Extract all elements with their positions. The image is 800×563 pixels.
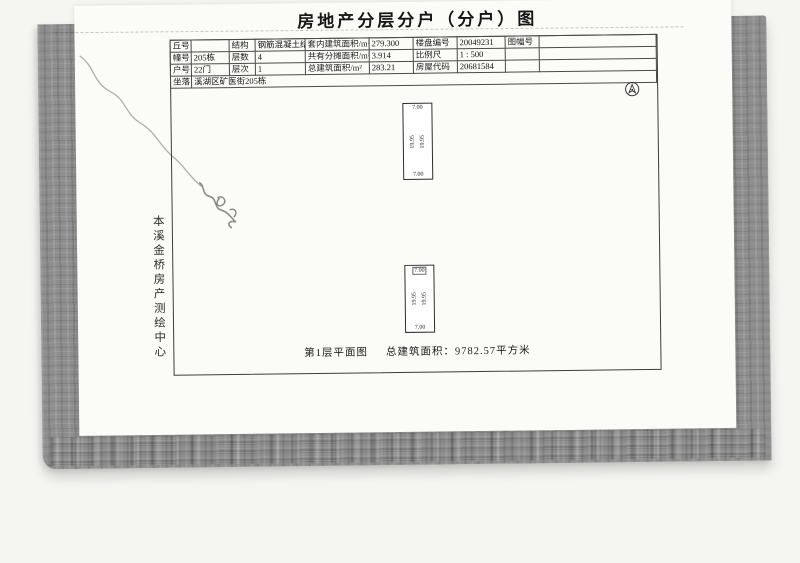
plan-frame: 丘号 结构 钢筋混凝土结构 套内建筑面积/m² 279.300 楼盘编号 200… xyxy=(170,34,662,376)
value-cell: 20681584 xyxy=(457,60,505,73)
value-cell: 205栋 xyxy=(191,52,229,64)
label-cell: 房屋代码 xyxy=(413,61,457,74)
label-cell: 层次 xyxy=(229,63,255,75)
value-cell: 20049231 xyxy=(457,36,505,49)
dimension-top: 7.00 xyxy=(403,105,431,111)
dimension-left: 19.95 xyxy=(412,289,418,309)
value-cell xyxy=(191,40,229,52)
value-cell: 1 xyxy=(255,63,305,76)
value-cell: 283.21 xyxy=(369,61,413,74)
label-cell: 户号 xyxy=(170,64,191,76)
dimension-bottom: 7.00 xyxy=(406,325,434,331)
value-cell: 279.300 xyxy=(369,37,413,50)
north-survey-icon xyxy=(624,81,640,97)
label-cell: 层数 xyxy=(229,51,255,63)
unit-rectangle-upper: 7.00 19.95 19.95 7.00 xyxy=(402,103,433,180)
plan-caption: 第1层平面图总建筑面积：9782.57平方米 xyxy=(174,341,660,362)
label-cell: 套内建筑面积/m² xyxy=(305,38,369,51)
caption-area-label: 总建筑面积：9782.57平方米 xyxy=(386,345,531,358)
value-cell: 4 xyxy=(255,51,305,64)
agency-vertical-label: 本溪金桥房产测绘中心 xyxy=(150,215,168,375)
label-cell: 结构 xyxy=(229,39,255,51)
label-cell: 楼盘编号 xyxy=(413,37,457,50)
label-cell xyxy=(505,48,539,60)
value-cell: 钢筋混凝土结构 xyxy=(255,39,305,52)
label-cell: 幢号 xyxy=(170,52,191,64)
dimension-right: 19.95 xyxy=(420,131,426,151)
label-cell xyxy=(505,60,539,72)
dimension-left: 19.95 xyxy=(410,131,416,151)
label-cell: 坐落 xyxy=(170,76,191,88)
value-cell: 1 : 500 xyxy=(457,48,505,61)
value-cell: 3.914 xyxy=(369,49,413,62)
unit-rectangle-lower: 7.00 19.95 19.95 7.00 xyxy=(404,265,435,333)
caption-floor-label: 第1层平面图 xyxy=(304,347,368,359)
label-cell: 图幅号 xyxy=(505,36,539,48)
label-cell: 总建筑面积/m² xyxy=(305,62,369,75)
dimension-right: 19.95 xyxy=(422,289,428,309)
label-cell: 共有分摊面积/m² xyxy=(305,50,369,63)
label-cell: 丘号 xyxy=(170,40,191,52)
label-cell: 比例尺 xyxy=(413,49,457,62)
scanned-page: 房地产分层分户（分户）图 本溪金桥房产测绘中心 丘号 结构 xyxy=(0,0,800,563)
info-table: 丘号 结构 钢筋混凝土结构 套内建筑面积/m² 279.300 楼盘编号 200… xyxy=(170,34,658,89)
scan-assembly: 房地产分层分户（分户）图 本溪金桥房产测绘中心 丘号 结构 xyxy=(0,0,800,563)
dimension-bottom: 7.00 xyxy=(404,172,432,178)
dimension-top: 7.00 xyxy=(405,267,433,275)
value-cell: 22门 xyxy=(191,64,229,76)
